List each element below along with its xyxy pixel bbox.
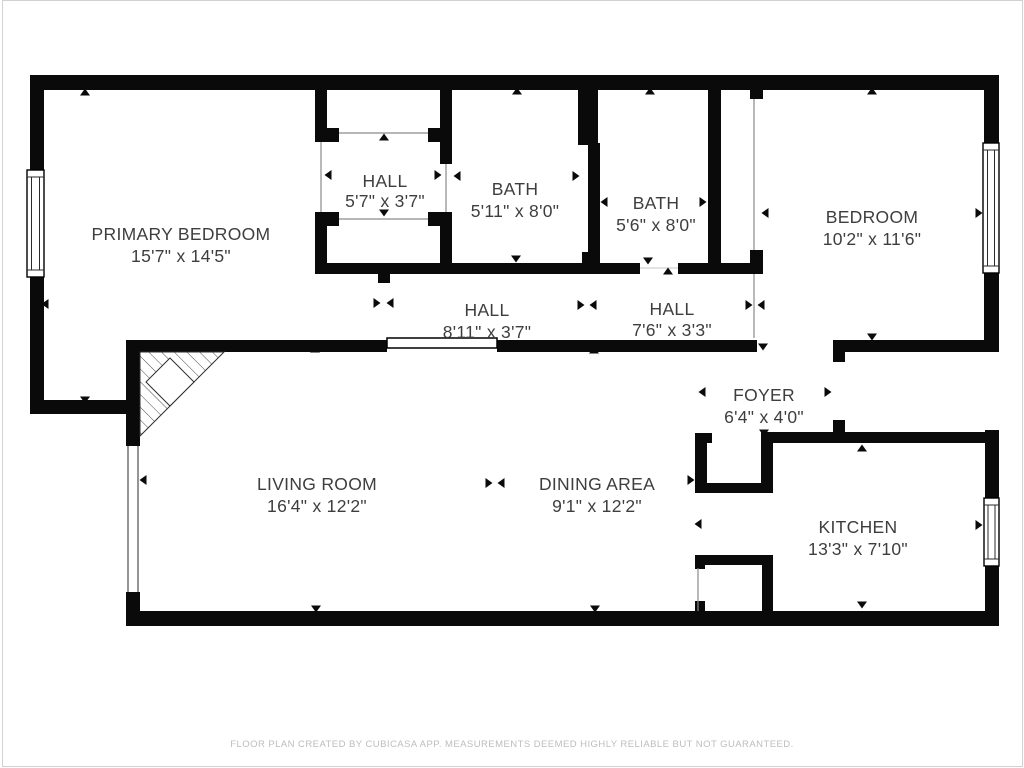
door-arrow-icon	[387, 298, 394, 308]
door-arrow-icon	[573, 171, 580, 181]
room-size-kitchen: 13'3" x 7'10"	[808, 539, 908, 559]
room-size-bath-1: 5'11" x 8'0"	[471, 201, 560, 221]
door-arrow-icon	[379, 134, 389, 141]
door-arrow-icon	[511, 256, 521, 263]
door-arrow-icon	[498, 478, 505, 488]
room-label-bedroom: BEDROOM	[826, 207, 919, 227]
room-label-foyer: FOYER	[733, 385, 795, 405]
room-size-dining-area: 9'1" x 12'2"	[552, 496, 642, 516]
door-arrow-icon	[700, 197, 707, 207]
room-size-hall-closet: 5'7" x 3'7"	[345, 191, 425, 211]
door-arrow-icon	[825, 387, 832, 397]
floor-plan-drawing: PRIMARY BEDROOM 15'7" x 14'5" HALL 5'7" …	[0, 0, 1024, 768]
room-size-living-room: 16'4" x 12'2"	[267, 496, 367, 516]
door-arrow-icon	[976, 520, 983, 530]
door-arrow-icon	[688, 475, 695, 485]
door-arrow-icon	[699, 387, 706, 397]
room-size-bedroom: 10'2" x 11'6"	[823, 229, 922, 249]
window-living-room-icon	[126, 446, 140, 592]
door-arrow-icon	[857, 602, 867, 609]
footer-disclaimer: FLOOR PLAN CREATED BY CUBICASA APP. MEAS…	[230, 739, 793, 750]
room-label-primary-bedroom: PRIMARY BEDROOM	[92, 224, 271, 244]
room-size-hall-east: 7'6" x 3'3"	[632, 320, 712, 340]
door-arrow-icon	[976, 208, 983, 218]
room-size-primary-bedroom: 15'7" x 14'5"	[131, 246, 231, 266]
fireplace-icon	[140, 352, 224, 436]
door-arrow-icon	[454, 171, 461, 181]
room-label-kitchen: KITCHEN	[819, 517, 898, 537]
door-arrow-icon	[746, 300, 753, 310]
door-arrow-icon	[601, 197, 608, 207]
door-arrow-icon	[578, 300, 585, 310]
door-arrow-icon	[374, 298, 381, 308]
door-arrow-icon	[867, 334, 877, 341]
room-size-foyer: 6'4" x 4'0"	[724, 407, 804, 427]
door-arrow-icon	[663, 268, 673, 275]
floor-plan-page: PRIMARY BEDROOM 15'7" x 14'5" HALL 5'7" …	[0, 0, 1024, 768]
door-arrow-icon	[762, 208, 769, 218]
room-labels: PRIMARY BEDROOM 15'7" x 14'5" HALL 5'7" …	[92, 171, 922, 559]
room-size-hall-main: 8'11" x 3'7"	[443, 322, 532, 342]
room-label-bath-2: BATH	[633, 193, 680, 213]
room-label-dining-area: DINING AREA	[539, 474, 655, 494]
room-label-hall-closet: HALL	[363, 171, 408, 191]
window-primary-bedroom-icon	[27, 170, 44, 277]
room-size-bath-2: 5'6" x 8'0"	[616, 215, 696, 235]
door-arrow-icon	[695, 519, 702, 529]
door-arrow-icon	[590, 300, 597, 310]
room-label-hall-east: HALL	[650, 299, 695, 319]
room-label-hall-main: HALL	[465, 300, 510, 320]
door-arrow-icon	[758, 344, 768, 351]
door-arrow-icon	[643, 258, 653, 265]
door-arrow-icon	[140, 475, 147, 485]
room-label-living-room: LIVING ROOM	[257, 474, 377, 494]
window-bedroom-icon	[983, 143, 999, 273]
door-arrow-icon	[857, 445, 867, 452]
room-label-bath-1: BATH	[492, 179, 539, 199]
door-arrow-icon	[758, 300, 765, 310]
door-arrow-icon	[435, 170, 442, 180]
door-arrow-icon	[325, 170, 332, 180]
door-arrow-icon	[486, 478, 493, 488]
window-kitchen-icon	[984, 498, 999, 566]
